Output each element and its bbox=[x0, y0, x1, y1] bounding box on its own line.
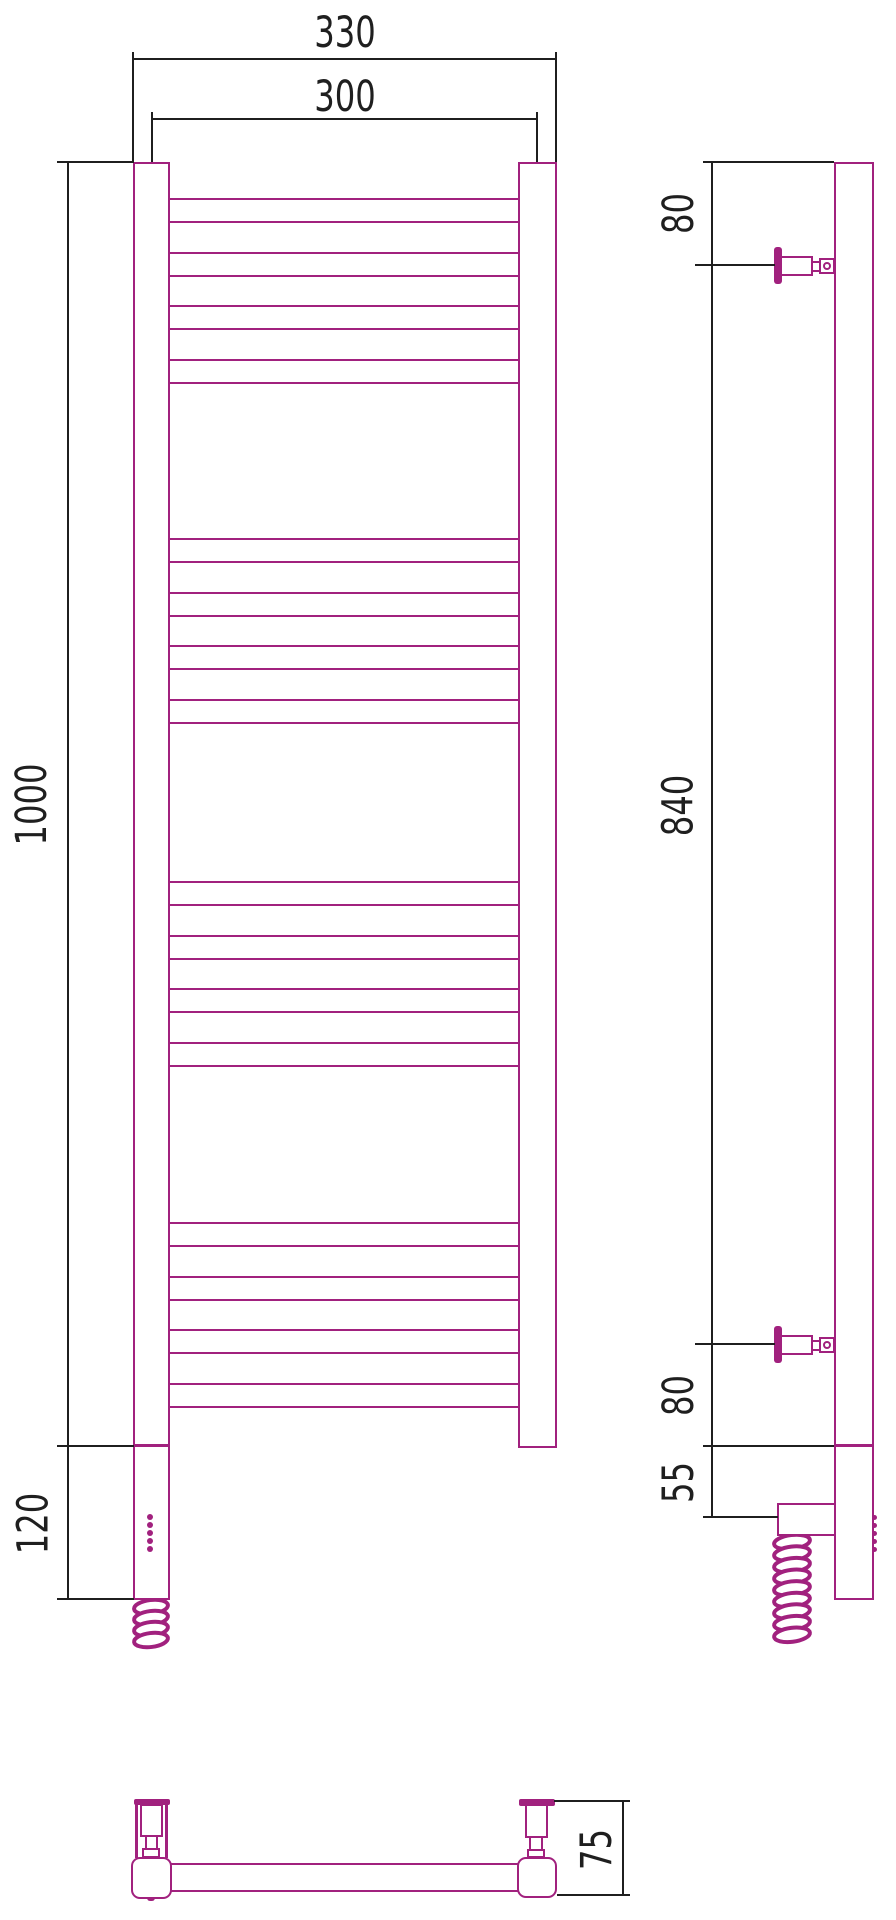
rung bbox=[168, 252, 520, 277]
side-bracket-top-flange bbox=[774, 247, 782, 284]
technical-drawing: 330 300 1000 120 80 840 80 55 bbox=[0, 0, 896, 1920]
dim-300-ext-right bbox=[536, 112, 538, 162]
bottom-left-bracket-outer-left bbox=[135, 1804, 138, 1858]
rung bbox=[168, 305, 520, 330]
dim-300-ext-left bbox=[151, 112, 153, 162]
rung bbox=[168, 1042, 520, 1067]
dim-120-tick-bottom bbox=[57, 1598, 134, 1600]
side-bracket-bottom-screw-icon bbox=[823, 1341, 831, 1349]
bottom-left-bracket-outer-right bbox=[165, 1804, 168, 1858]
dim-330-ext-left bbox=[132, 52, 134, 162]
indicator-dot bbox=[147, 1530, 153, 1536]
side-post-bar bbox=[834, 162, 874, 1600]
dim-330-ext-right bbox=[555, 52, 557, 162]
bottom-left-bracket-foot bbox=[142, 1848, 160, 1858]
dim-120-label: 120 bbox=[0, 1463, 94, 1583]
side-dim-80-top-label: 80 bbox=[619, 153, 739, 273]
indicator-dot-side bbox=[872, 1531, 877, 1536]
indicator-dot bbox=[147, 1522, 153, 1528]
side-bracket-bottom-flange bbox=[774, 1326, 782, 1363]
indicator-dot-side bbox=[872, 1523, 877, 1528]
indicator-dot bbox=[147, 1538, 153, 1544]
dim-1000-tick-top bbox=[57, 161, 134, 163]
dim-1000-tick-bottom bbox=[57, 1445, 134, 1447]
side-dim-840-label: 840 bbox=[619, 745, 739, 865]
bottom-left-bracket-barrel bbox=[140, 1804, 163, 1837]
side-terminal-box bbox=[777, 1503, 836, 1536]
dim-75-label: 75 bbox=[537, 1789, 657, 1909]
rung bbox=[168, 359, 520, 384]
bottom-left-drain-bump bbox=[147, 1897, 155, 1901]
rung bbox=[168, 1276, 520, 1301]
rung bbox=[168, 988, 520, 1013]
side-dim-55-label: 55 bbox=[619, 1422, 739, 1542]
dim-300-label: 300 bbox=[285, 37, 405, 157]
indicator-dot-side bbox=[872, 1539, 877, 1544]
bottom-cross-tube bbox=[168, 1863, 520, 1892]
side-bracket-bottom-body bbox=[780, 1335, 813, 1355]
dim-left-vline bbox=[67, 162, 69, 1600]
rung bbox=[168, 1383, 520, 1408]
rung bbox=[168, 699, 520, 724]
side-bracket-top-body bbox=[780, 256, 813, 276]
indicator-dot bbox=[147, 1546, 153, 1552]
rung bbox=[168, 592, 520, 617]
coil-icon bbox=[768, 1534, 816, 1646]
side-post-joint bbox=[834, 1444, 874, 1447]
rung bbox=[168, 645, 520, 670]
coil-icon bbox=[128, 1598, 174, 1650]
dim-1000-label: 1000 bbox=[0, 744, 93, 864]
side-bracket-top-screw-icon bbox=[823, 262, 831, 270]
rung bbox=[168, 1329, 520, 1354]
front-left-post bbox=[133, 162, 170, 1600]
rung bbox=[168, 935, 520, 960]
bottom-left-bracket-flange bbox=[134, 1799, 170, 1805]
bottom-left-post-section bbox=[131, 1857, 172, 1899]
rung bbox=[168, 538, 520, 563]
indicator-dot bbox=[147, 1514, 153, 1520]
front-right-post bbox=[518, 162, 557, 1448]
indicator-dot-side bbox=[872, 1515, 877, 1520]
rung bbox=[168, 881, 520, 906]
front-left-post-joint bbox=[133, 1444, 170, 1447]
rung bbox=[168, 198, 520, 223]
rung bbox=[168, 1222, 520, 1247]
indicator-dot-side bbox=[872, 1547, 877, 1552]
